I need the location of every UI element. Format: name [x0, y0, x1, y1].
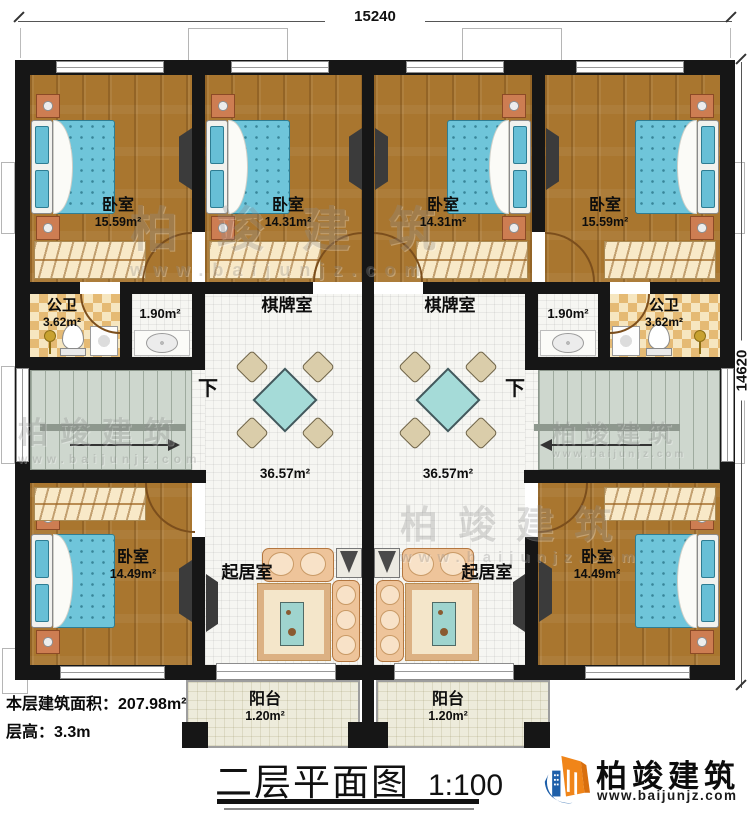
floor-area-label: 本层建筑面积：	[6, 696, 118, 713]
room-area: 3.62m²	[22, 315, 102, 329]
stair-arrow-head	[540, 439, 552, 451]
company-website: www.baijunjz.com	[597, 788, 738, 803]
room-label-living-left: 起居室	[187, 563, 307, 583]
pillow	[513, 126, 527, 164]
room-label-balcony-left: 阳台 1.20m²	[205, 690, 325, 724]
wall	[598, 294, 610, 357]
pillow	[701, 540, 715, 578]
stairs-down-label: 下	[198, 372, 218, 401]
company-logo-icon	[542, 750, 590, 806]
room-area: 14.31m²	[383, 215, 503, 230]
sofa-cushion	[380, 585, 400, 605]
sofa-cushion	[336, 635, 356, 655]
floor-height-label: 层高：	[6, 724, 54, 741]
room-area: 36.57m²	[225, 466, 345, 482]
room-name: 公卫	[624, 297, 704, 315]
sink-icon	[552, 333, 584, 353]
watermark-text: 柏竣建筑	[18, 408, 202, 452]
wall	[525, 357, 735, 370]
room-area: 1.90m²	[120, 306, 200, 322]
wall	[15, 282, 80, 294]
room-area: 1.20m²	[388, 709, 508, 724]
nightstand	[36, 216, 60, 240]
watermark: 柏竣建筑 www.baijunjz.com	[552, 414, 686, 460]
top-dimension-value: 15240	[325, 8, 425, 25]
nightstand	[36, 94, 60, 118]
room-label-living-right: 起居室	[427, 563, 547, 583]
room-label-bedroom-top-left: 卧室 15.59m²	[58, 196, 178, 230]
nightstand	[36, 630, 60, 654]
balcony-pillar	[348, 722, 388, 748]
watermark-url: www.baijunjz.com	[130, 260, 474, 281]
watermark-url: www.baijunjz.com	[552, 449, 686, 460]
sofa-cushion	[380, 635, 400, 655]
sink-icon	[146, 333, 178, 353]
extension-line	[20, 28, 21, 58]
room-name: 阳台	[205, 690, 325, 709]
table-decor	[440, 628, 448, 636]
floor-area-value: 207.98m²	[118, 696, 187, 713]
nightstand	[502, 94, 526, 118]
wall	[650, 282, 735, 294]
room-area: 14.31m²	[228, 215, 348, 230]
tv-icon	[375, 128, 388, 190]
drawing-scale: 1:100	[428, 769, 503, 802]
wall	[15, 470, 206, 483]
room-name: 棋牌室	[390, 296, 510, 316]
balcony-pillar	[524, 722, 550, 748]
coffee-table	[280, 602, 304, 646]
room-name: 卧室	[58, 196, 178, 215]
title-underline	[217, 799, 479, 804]
balcony-pillar	[182, 722, 208, 748]
wall	[524, 470, 735, 483]
pillow	[35, 126, 49, 164]
extension-line	[730, 28, 731, 58]
sliding-door	[394, 663, 514, 680]
room-name: 棋牌室	[227, 296, 347, 316]
room-name: 卧室	[228, 196, 348, 215]
pillow	[701, 126, 715, 164]
wall	[120, 294, 132, 357]
nightstand	[690, 94, 714, 118]
watermark-url: www.baijunjz.com	[18, 452, 202, 466]
window	[576, 61, 684, 73]
wardrobe	[604, 241, 716, 279]
floor-plan-page: 15240 14620	[0, 0, 750, 818]
room-name: 阳台	[388, 690, 508, 709]
pillow	[701, 170, 715, 208]
window-sill	[1, 162, 15, 234]
room-label-chess-right: 棋牌室	[390, 296, 510, 316]
room-name: 卧室	[383, 196, 503, 215]
room-label-bath-right: 公卫 3.62m²	[624, 297, 704, 329]
floor-strip	[525, 360, 538, 470]
wall	[15, 357, 205, 370]
floor-area-text: 本层建筑面积：207.98m²	[6, 690, 187, 714]
room-name: 卧室	[537, 548, 657, 567]
nightstand	[211, 94, 235, 118]
room-name: 卧室	[545, 196, 665, 215]
table-decor	[438, 610, 443, 615]
pillow	[210, 126, 224, 164]
room-name: 卧室	[73, 548, 193, 567]
room-label-bedroom-top-mid-left: 卧室 14.31m²	[228, 196, 348, 230]
room-label-chess-left: 棋牌室	[227, 296, 347, 316]
room-area: 15.59m²	[58, 215, 178, 230]
pillow	[35, 170, 49, 208]
window	[56, 61, 164, 73]
wall	[192, 537, 205, 680]
nightstand	[502, 216, 526, 240]
room-area: 1.90m²	[528, 306, 608, 322]
tv-icon	[179, 128, 192, 190]
wall	[423, 282, 610, 294]
wall	[362, 60, 374, 748]
toilet-tank	[60, 348, 86, 356]
coffee-table	[432, 602, 456, 646]
sliding-door	[216, 663, 336, 680]
drawing-title: 二层平面图1:100	[215, 752, 503, 806]
window-sill	[1, 366, 15, 464]
extension-box	[188, 28, 288, 61]
wall	[120, 282, 313, 294]
toilet-tank	[646, 348, 672, 356]
window	[585, 666, 690, 679]
nightstand	[690, 216, 714, 240]
pillow	[513, 170, 527, 208]
area-label-chess-left: 36.57m²	[225, 466, 345, 482]
floor-drain-icon	[694, 330, 706, 342]
floor-height-value: 3.3m	[54, 724, 90, 741]
room-label-bedroom-bottom-right: 卧室 14.49m²	[537, 548, 657, 582]
stairs-down-label: 下	[505, 372, 525, 401]
room-label-wash-left: 1.90m²	[120, 306, 200, 322]
right-dimension-value: 14620	[734, 341, 750, 401]
sofa-cushion	[336, 610, 356, 630]
window	[60, 666, 165, 679]
watermark-text: 柏竣建筑	[552, 414, 686, 449]
extension-box	[462, 28, 562, 61]
pillow	[35, 584, 49, 622]
table-decor	[286, 610, 291, 615]
room-name: 起居室	[427, 563, 547, 583]
room-label-bedroom-top-mid-right: 卧室 14.31m²	[383, 196, 503, 230]
room-label-bath-left: 公卫 3.62m²	[22, 297, 102, 329]
floor-drain-stem	[49, 342, 51, 354]
floor-height-text: 层高：3.3m	[6, 718, 90, 742]
watermark-text: 柏竣建筑	[400, 494, 641, 549]
room-area: 1.20m²	[205, 709, 325, 724]
window	[721, 368, 734, 462]
room-area: 15.59m²	[545, 215, 665, 230]
room-label-bedroom-bottom-left: 卧室 14.49m²	[73, 548, 193, 582]
window	[231, 61, 329, 73]
room-area: 14.49m²	[537, 567, 657, 582]
wardrobe	[34, 487, 146, 521]
watermark: 柏竣建筑 www.baijunjz.com	[18, 408, 202, 466]
tv-icon	[546, 128, 559, 190]
drawing-title-text: 二层平面图	[215, 762, 410, 803]
table-decor	[288, 628, 296, 636]
sofa-cushion	[380, 610, 400, 630]
wall	[532, 60, 545, 232]
pillow	[701, 584, 715, 622]
title-underline-thin	[224, 808, 474, 810]
floor-drain-stem	[699, 342, 701, 354]
room-label-wash-right: 1.90m²	[528, 306, 608, 322]
room-area: 36.57m²	[388, 466, 508, 482]
room-area: 14.49m²	[73, 567, 193, 582]
room-name: 起居室	[187, 563, 307, 583]
tv-icon	[349, 128, 362, 190]
room-name: 公卫	[22, 297, 102, 315]
floor-drain-icon	[44, 330, 56, 342]
window	[406, 61, 504, 73]
room-area: 3.62m²	[624, 315, 704, 329]
pillow	[35, 540, 49, 578]
sofa-cushion	[336, 585, 356, 605]
area-label-chess-right: 36.57m²	[388, 466, 508, 482]
room-label-balcony-right: 阳台 1.20m²	[388, 690, 508, 724]
room-label-bedroom-top-right: 卧室 15.59m²	[545, 196, 665, 230]
nightstand	[690, 630, 714, 654]
